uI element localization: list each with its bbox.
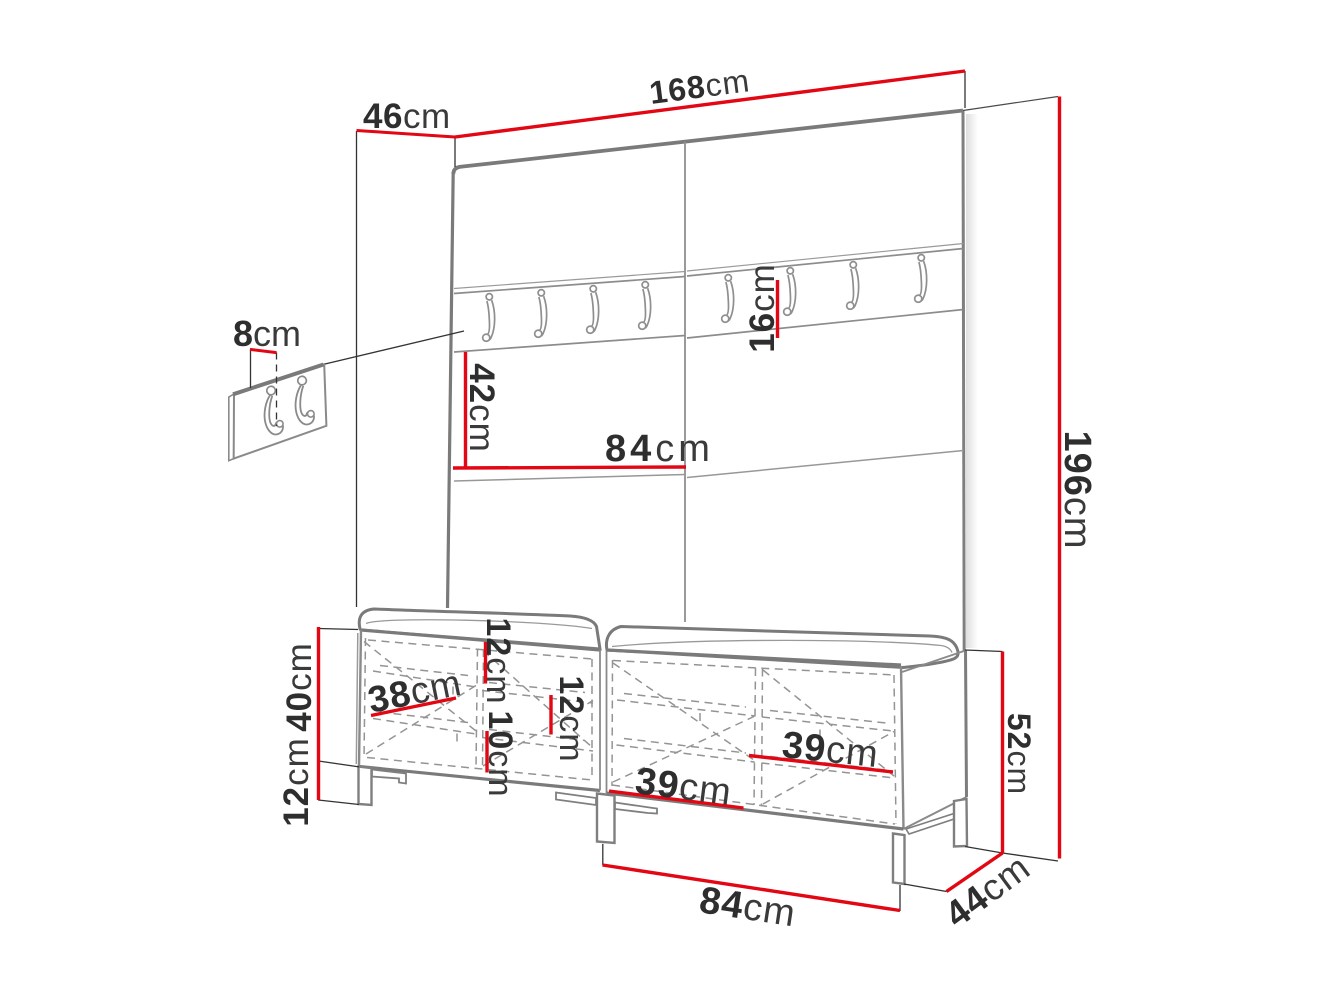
svg-text:12cm: 12cm bbox=[277, 737, 316, 827]
svg-text:10cm: 10cm bbox=[481, 710, 519, 797]
svg-text:12cm: 12cm bbox=[552, 675, 590, 762]
svg-text:46cm: 46cm bbox=[363, 97, 451, 136]
svg-text:12cm: 12cm bbox=[479, 617, 517, 704]
svg-text:40cm: 40cm bbox=[280, 642, 319, 732]
svg-text:196cm: 196cm bbox=[1056, 430, 1098, 549]
svg-text:42cm: 42cm bbox=[462, 363, 501, 453]
svg-text:16cm: 16cm bbox=[743, 263, 782, 353]
svg-text:8cm: 8cm bbox=[233, 313, 301, 354]
svg-text:84cm: 84cm bbox=[605, 428, 714, 470]
svg-text:52cm: 52cm bbox=[1001, 713, 1037, 795]
